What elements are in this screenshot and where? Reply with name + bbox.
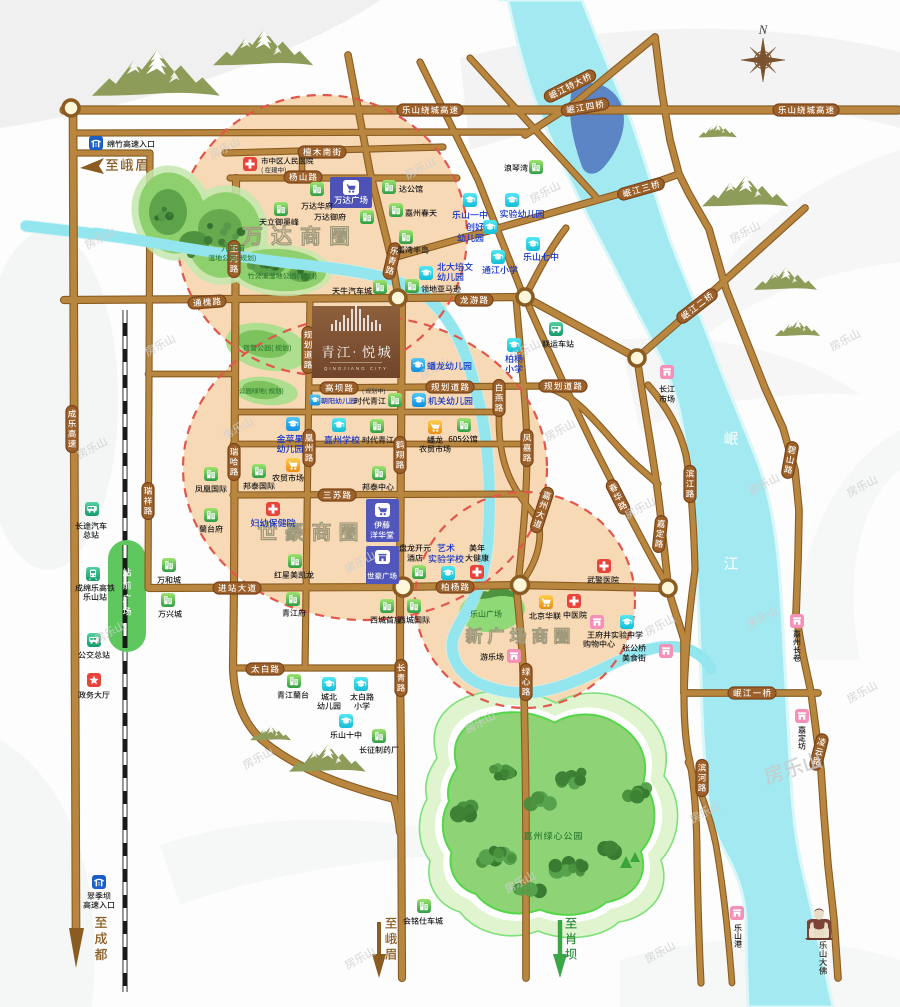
svg-text:QINGJIANG CITY: QINGJIANG CITY — [324, 366, 388, 371]
svg-text:N: N — [758, 22, 769, 37]
